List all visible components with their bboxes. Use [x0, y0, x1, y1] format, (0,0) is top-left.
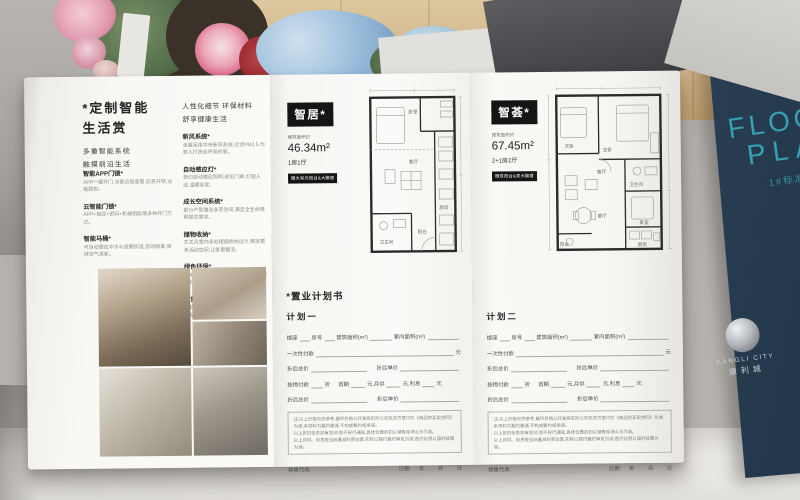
area-label: 建筑面积约 [288, 134, 360, 141]
form-row-discount: 折后总价 折后单价 [487, 363, 671, 373]
blank-line [511, 365, 567, 373]
field-building: 楼座 [287, 334, 298, 342]
field-room: 房号 [311, 333, 322, 341]
feature-desc: 夜归自动感应照明,进出门廊,灯随人动,温暖到家。 [183, 174, 267, 190]
field-room: 房号 [511, 333, 522, 341]
field-discount-unit: 折后单价 [577, 394, 599, 402]
blank-line [600, 395, 669, 403]
feature-label: 成长空间系统* [183, 196, 267, 206]
blank-line [622, 380, 634, 387]
blank-line [299, 334, 309, 341]
floorplan-unit-b: 次卧 主卧 卫生间 卧室 厨房 客厅 餐厅 阳台 [540, 83, 678, 262]
svg-text:卧室: 卧室 [639, 219, 649, 226]
brand-logo-icon [724, 316, 762, 354]
field-interest: 利息 [410, 379, 421, 387]
field-sales-rep: 销售代表: [488, 465, 511, 473]
feature-item: 自动感应灯* 夜归自动感应照明,进出门廊,灯随人动,温暖到家。 [183, 163, 267, 189]
blank-line [600, 364, 669, 372]
field-onetime: 一次性付款 [287, 349, 314, 357]
field-first-payment: 首期 [338, 380, 349, 388]
unit-zhe: 折 [325, 380, 330, 388]
room-labels: 卧室 客厅 厨房 卫生间 阳台 [378, 108, 449, 246]
purchase-plan-form-1: *置业计划书 计划一 楼座 房号 建筑面积(m²) 套内面积(m²) 一次性付款… [286, 287, 462, 474]
brand-logo: KANGLI CITY 康利城 [697, 313, 791, 381]
unit-bonus-badge: 赠大采光阳台&大飘窗 [288, 173, 338, 184]
blank-line [513, 465, 577, 473]
purchase-plan-title: *置业计划书 [286, 287, 460, 303]
blank-line [570, 334, 592, 341]
svg-text:卧室: 卧室 [408, 108, 418, 115]
panel-smart-living: *定制智能 生活赏 多重智能系统 触摸前沿生活 智能APP门锁* APP一键开门… [24, 75, 274, 470]
walls [556, 95, 662, 250]
blank-line [316, 348, 454, 356]
unit-bonus-badge: 赠双阳台&双大飘窗 [492, 171, 537, 181]
svg-text:厨房: 厨房 [439, 204, 449, 211]
feature-column-1: 智能APP门锁* APP一键开门,访客远程查看,应急开锁,远程授权。 云智能门锁… [83, 168, 176, 266]
blank-line [516, 348, 664, 357]
form-notes: 注:以上价格仅供参考,最终价格以开发商实际公布及双方签订的《商品房买卖合同》为准… [487, 409, 671, 454]
blank-line [313, 466, 377, 474]
field-discount-unit: 折后单价 [377, 364, 399, 372]
plan-two-label: 计划二 [486, 309, 670, 323]
svg-text:厨房: 厨房 [638, 241, 648, 248]
unit-name-badge: 智荟* [491, 100, 537, 124]
field-inner-area: 套内面积(m²) [394, 332, 426, 340]
svg-text:阳台: 阳台 [560, 241, 570, 248]
field-area: 建筑面积(m²) [536, 333, 568, 341]
field-date: 日期: [399, 464, 411, 472]
blank-line [351, 380, 365, 387]
svg-text:卫生间: 卫生间 [380, 239, 394, 246]
field-discount-total: 折后总价 [487, 364, 509, 372]
form-row-discount-2: 折后总价 折后单价 [487, 394, 671, 404]
blank-line [400, 364, 459, 372]
feature-desc: 可自动感应冲水与座圈加温,自动除臭,保持空气清新。 [84, 243, 176, 259]
feature-item: 智能APP门锁* APP一键开门,访客远程查看,应急开锁,远程授权。 [83, 168, 175, 194]
field-discount-total: 折后总价 [287, 395, 309, 403]
field-area: 建筑面积(m²) [336, 333, 368, 341]
feature-label: 智能马桶* [84, 233, 176, 243]
feature-label: 云智能门锁* [83, 200, 175, 210]
svg-text:次卧: 次卧 [565, 143, 575, 150]
form-row-onetime: 一次性付款 元 [487, 347, 671, 357]
field-discount-unit: 折后单价 [577, 363, 599, 371]
blank-line [551, 380, 565, 387]
purchase-plan-form-2: 计划二 楼座 房号 建筑面积(m²) 套内面积(m²) 一次性付款 元 折后总价… [486, 285, 672, 474]
feature-label: 智能APP门锁* [83, 168, 175, 178]
plan-one-label: 计划一 [286, 309, 460, 323]
blank-line [511, 396, 567, 404]
blank-line [427, 333, 459, 340]
svg-text:卫生间: 卫生间 [629, 181, 643, 188]
blank-line [400, 395, 459, 403]
photo-kitchen [99, 368, 192, 457]
form-row-discount: 折后总价 折后单价 [287, 363, 461, 373]
unit-name-badge: 智居* [287, 102, 333, 126]
field-first-payment: 首期 [538, 379, 549, 387]
field-mortgage: 按揭付款 [287, 380, 309, 388]
blank-line [587, 380, 601, 387]
photo-balcony [193, 367, 268, 456]
svg-text:阳台: 阳台 [418, 228, 428, 235]
photo-bathroom [193, 321, 267, 366]
field-monthly: 月供 [574, 379, 585, 387]
feature-desc: 部分户型赠送多变空间,满足全生命周期居住需求。 [183, 206, 267, 222]
blank-line [524, 334, 534, 341]
field-discount-unit: 折后单价 [377, 395, 399, 403]
unit-yuan: 元 [436, 379, 441, 387]
panel-unit-b: 智荟* 建筑面积约 67.45m² 2+1房2厅 赠双阳台&双大飘窗 [470, 71, 684, 465]
unit-card-zhiju: 智居* 建筑面积约 46.34m² 1房1厅 赠大采光阳台&大飘窗 [287, 102, 360, 185]
blank-line [324, 334, 334, 341]
field-sales-rep: 销售代表: [288, 465, 311, 473]
blank-line [511, 381, 523, 388]
field-interest: 利息 [610, 379, 621, 387]
form-row-onetime: 一次性付款 元 [287, 347, 461, 357]
field-date: 日期: [609, 464, 621, 472]
form-row-mortgage: 按揭付款 折 首期 元, 月供 元, 利息 元 [287, 378, 461, 388]
field-building: 楼座 [487, 334, 498, 342]
field-discount-total: 折后总价 [287, 364, 309, 372]
feature-desc: 玄关及室内多处精细收纳设计,释放更多活动空间,让家更整洁。 [184, 239, 268, 255]
field-monthly: 月供 [374, 379, 385, 387]
unit-yuan: 元 [665, 347, 670, 355]
date-ymd: 年 月 日 [419, 464, 462, 472]
form-row-discount-2: 折后总价 折后单价 [287, 394, 461, 404]
blank-line [370, 334, 392, 341]
photo-living-room [98, 268, 191, 367]
svg-text:主卧: 主卧 [603, 146, 613, 153]
room-labels: 次卧 主卧 卫生间 卧室 厨房 客厅 餐厅 阳台 [559, 142, 650, 249]
feature-label: 自动感应灯* [183, 163, 267, 173]
feature-desc: 全屋采用中央新风系统,过滤PM2.5,为家人打造会呼吸的家。 [183, 141, 267, 157]
interior-photo-collage [98, 267, 268, 455]
form-notes: 注:以上价格仅供参考,最终价格以开发商实际公布及双方签订的《商品房买卖合同》为准… [287, 409, 461, 454]
blank-line [627, 333, 669, 340]
blank-line [311, 381, 323, 388]
unit-area: 46.34m² [288, 142, 360, 155]
walls [370, 97, 456, 252]
field-onetime: 一次性付款 [487, 349, 514, 357]
photo-bedroom [192, 267, 267, 320]
feature-item: 新风系统* 全屋采用中央新风系统,过滤PM2.5,为家人打造会呼吸的家。 [183, 131, 267, 157]
feature-item: 储物收纳* 玄关及室内多处精细收纳设计,释放更多活动空间,让家更整洁。 [184, 228, 268, 254]
feature-item: 智能马桶* 可自动感应冲水与座圈加温,自动除臭,保持空气清新。 [84, 233, 176, 259]
panel-unit-a: 智居* 建筑面积约 46.34m² 1房1厅 赠大采光阳台&大飘窗 [270, 73, 474, 467]
feature-desc: APP一键开门,访客远程查看,应急开锁,远程授权。 [83, 178, 175, 194]
feature-desc: APP+指纹+密码+机械钥匙等多种开门方式。 [83, 211, 175, 227]
dimension-lines [546, 86, 672, 250]
blank-line [422, 380, 434, 387]
svg-text:餐厅: 餐厅 [597, 212, 607, 219]
feature-item: 云智能门锁* APP+指纹+密码+机械钥匙等多种开门方式。 [83, 200, 175, 226]
date-ymd: 年 月 日 [629, 463, 672, 471]
blank-line [311, 365, 367, 373]
feature-label: 储物收纳* [184, 228, 268, 238]
field-inner-area: 套内面积(m²) [594, 332, 626, 340]
unit-layout: 1房1厅 [288, 157, 360, 167]
field-mortgage: 按揭付款 [487, 380, 509, 388]
form-row-unit: 楼座 房号 建筑面积(m²) 套内面积(m²) [487, 332, 671, 342]
trifold-brochure: *定制智能 生活赏 多重智能系统 触摸前沿生活 智能APP门锁* APP一键开门… [24, 71, 684, 470]
floorplan-unit-a: 卧室 客厅 厨房 卫生间 阳台 [354, 85, 468, 264]
field-discount-total: 折后总价 [487, 395, 509, 403]
unit-yuan: 元 [455, 347, 460, 355]
unit-zhe: 折 [525, 380, 530, 388]
cover-title: 1# FLOOR PLAN 1#标准层户型图 [682, 76, 800, 200]
feature-item: 成长空间系统* 部分户型赠送多变空间,满足全生命周期居住需求。 [183, 196, 267, 222]
form-row-unit: 楼座 房号 建筑面积(m²) 套内面积(m²) [287, 332, 461, 342]
feature-column-2-header: 人性化细节 环保材料 舒享健康生活 [182, 101, 266, 127]
smart-living-title: *定制智能 生活赏 [82, 98, 149, 139]
svg-text:客厅: 客厅 [409, 158, 419, 165]
unit-yuan: 元 [636, 378, 641, 386]
svg-text:客厅: 客厅 [597, 168, 607, 175]
blank-line [387, 380, 401, 387]
form-row-mortgage: 按揭付款 折 首期 元, 月供 元, 利息 元 [487, 378, 671, 388]
blank-line [311, 396, 367, 404]
photo-scene: 1# FLOOR PLAN 1#标准层户型图 KANGLI CITY 康利城 *… [0, 0, 800, 500]
feature-label: 新风系统* [183, 131, 267, 141]
blank-line [499, 334, 509, 341]
